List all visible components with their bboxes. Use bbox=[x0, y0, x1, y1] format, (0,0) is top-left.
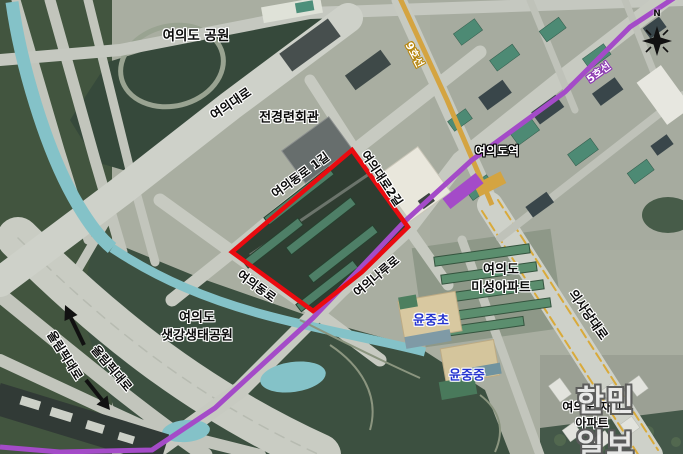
label-yeouido-station: 여의도역 bbox=[475, 145, 519, 159]
label-compass-north: N bbox=[653, 9, 661, 19]
compass-icon bbox=[642, 26, 672, 56]
newspaper-watermark: 한민일보 bbox=[577, 376, 648, 454]
satellite-map: 여의도 공원 여의대로 전경련회관 여의동로 1길 여의대로2길 여의도역 9호… bbox=[0, 0, 683, 454]
label-yunjung-middle: 윤중중 bbox=[449, 370, 485, 385]
label-fki-hall: 전경련회관 bbox=[259, 112, 319, 127]
label-yunjung-elementary: 윤중초 bbox=[413, 315, 449, 330]
label-misung-apartment: 여의도 미성아파트 bbox=[471, 261, 531, 296]
label-yeouido-park: 여의도 공원 bbox=[163, 29, 230, 45]
label-saetgang-park: 여의도 샛강생태공원 bbox=[161, 309, 233, 344]
